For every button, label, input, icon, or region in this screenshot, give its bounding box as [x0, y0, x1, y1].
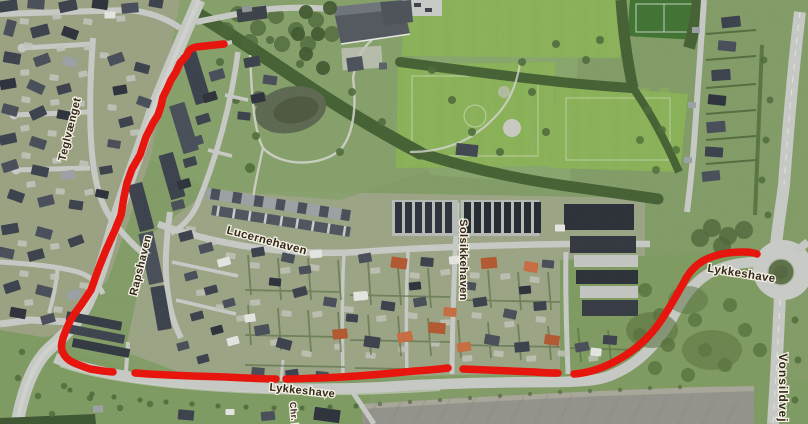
svg-text:Vonsildvej: Vonsildvej: [776, 353, 790, 422]
svg-text:Chr. L: Chr. L: [288, 401, 300, 424]
svg-text:Solsikkehaven: Solsikkehaven: [457, 219, 469, 301]
